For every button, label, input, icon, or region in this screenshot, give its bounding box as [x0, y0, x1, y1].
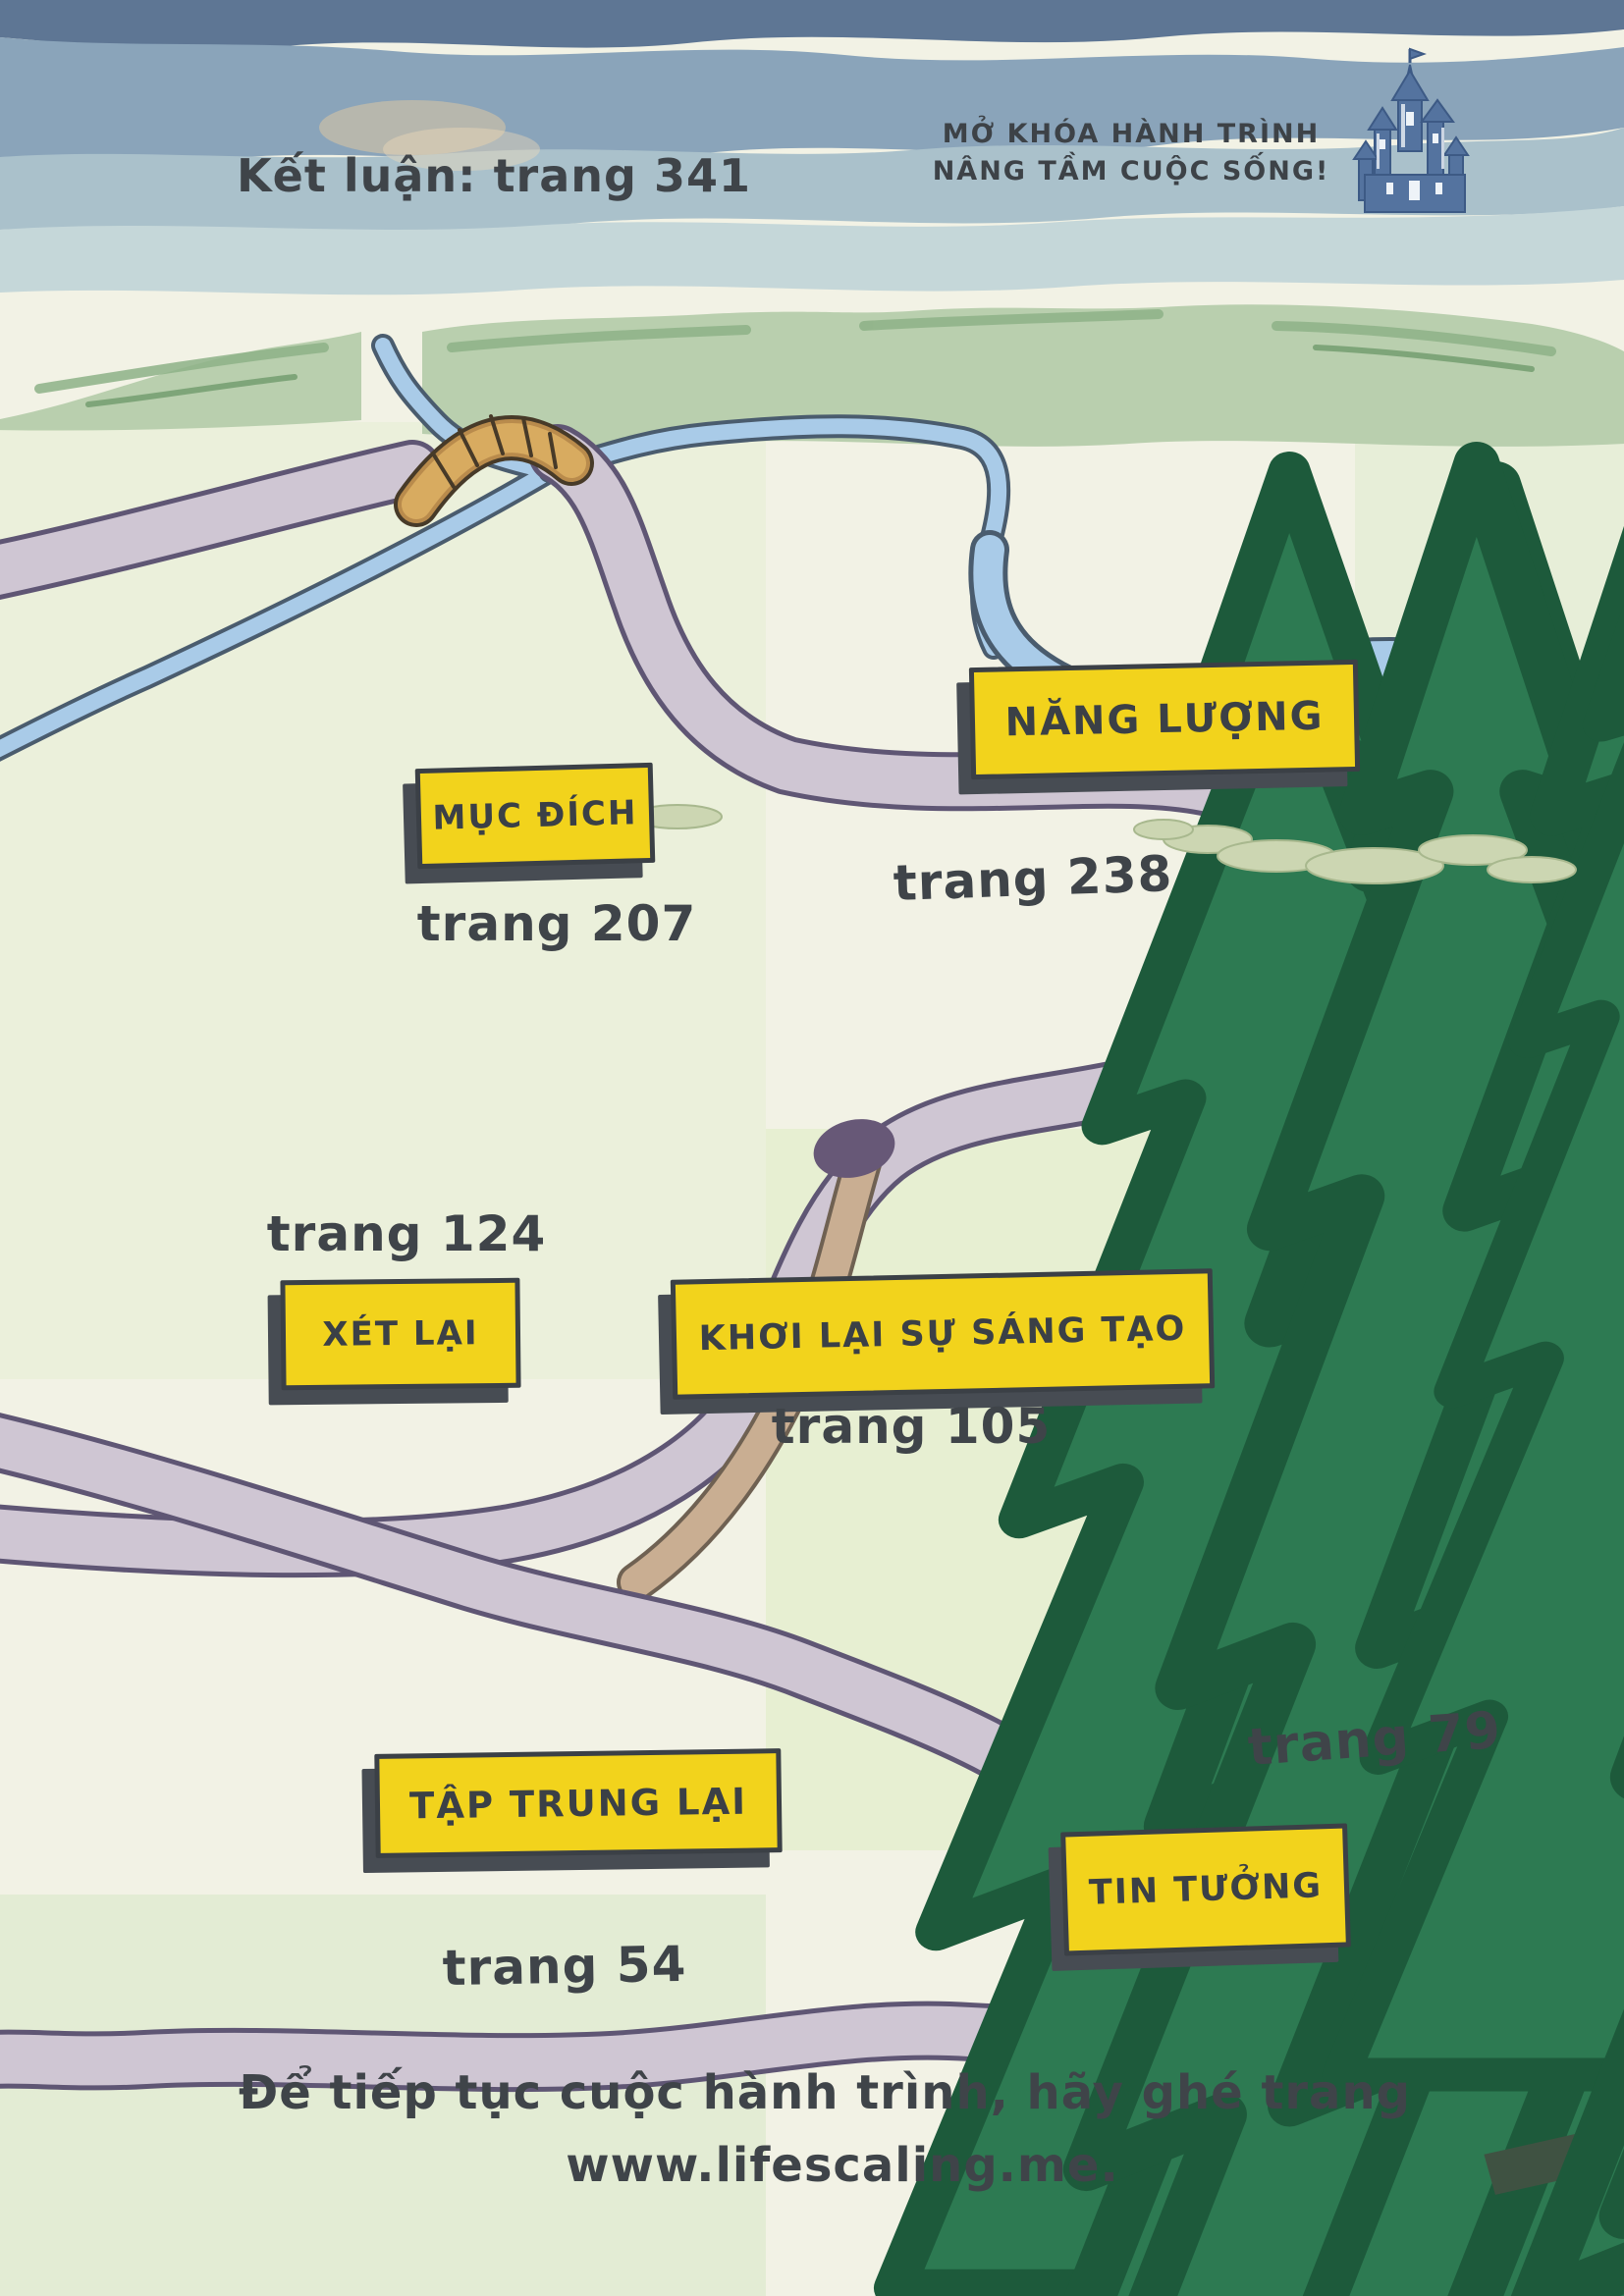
footer-url: www.lifescaling.me. [566, 2138, 1118, 2193]
map-illustration [0, 0, 1624, 2296]
sign-muc-dich: MỤC ĐÍCH [415, 763, 656, 869]
sign-tin-tuong: TIN TƯỞNG [1060, 1823, 1351, 1955]
page-ref-tap-trung: trang 54 [442, 1936, 687, 1997]
conclusion-label: Kết luận: trang 341 [237, 149, 751, 202]
page-ref-muc-dich: trang 207 [417, 895, 696, 952]
sign-khoi-lai-su-sang-tao: KHƠI LẠI SỰ SÁNG TẠO [671, 1268, 1215, 1400]
sign-xet-lai: XÉT LẠI [280, 1278, 520, 1391]
tagline-line2: NÂNG TẦM CUỘC SỐNG! [933, 153, 1330, 190]
page-ref-nang-luong: trang 238 [893, 845, 1173, 912]
page-ref-khoi-lai: trang 105 [772, 1398, 1051, 1455]
book-page-journey-map: Kết luận: trang 341 MỞ KHÓA HÀNH TRÌNH N… [0, 0, 1624, 2296]
sign-tap-trung-lai: TẬP TRUNG LẠI [374, 1748, 782, 1858]
sign-label: MỤC ĐÍCH [432, 793, 638, 837]
page-ref-xet-lai: trang 124 [267, 1205, 546, 1262]
sign-label: XÉT LẠI [322, 1313, 479, 1355]
sign-label: KHƠI LẠI SỰ SÁNG TẠO [698, 1309, 1186, 1359]
sign-label: TIN TƯỞNG [1088, 1866, 1323, 1912]
footer-line1: Để tiếp tục cuộc hành trình, hãy ghé tra… [239, 2065, 1411, 2120]
sign-nang-luong: NĂNG LƯỢNG [969, 660, 1360, 779]
tagline: MỞ KHÓA HÀNH TRÌNH NÂNG TẦM CUỘC SỐNG! [933, 116, 1330, 190]
sign-label: NĂNG LƯỢNG [1004, 694, 1325, 746]
tagline-line1: MỞ KHÓA HÀNH TRÌNH [933, 116, 1330, 153]
sign-label: TẬP TRUNG LẠI [409, 1780, 747, 1827]
